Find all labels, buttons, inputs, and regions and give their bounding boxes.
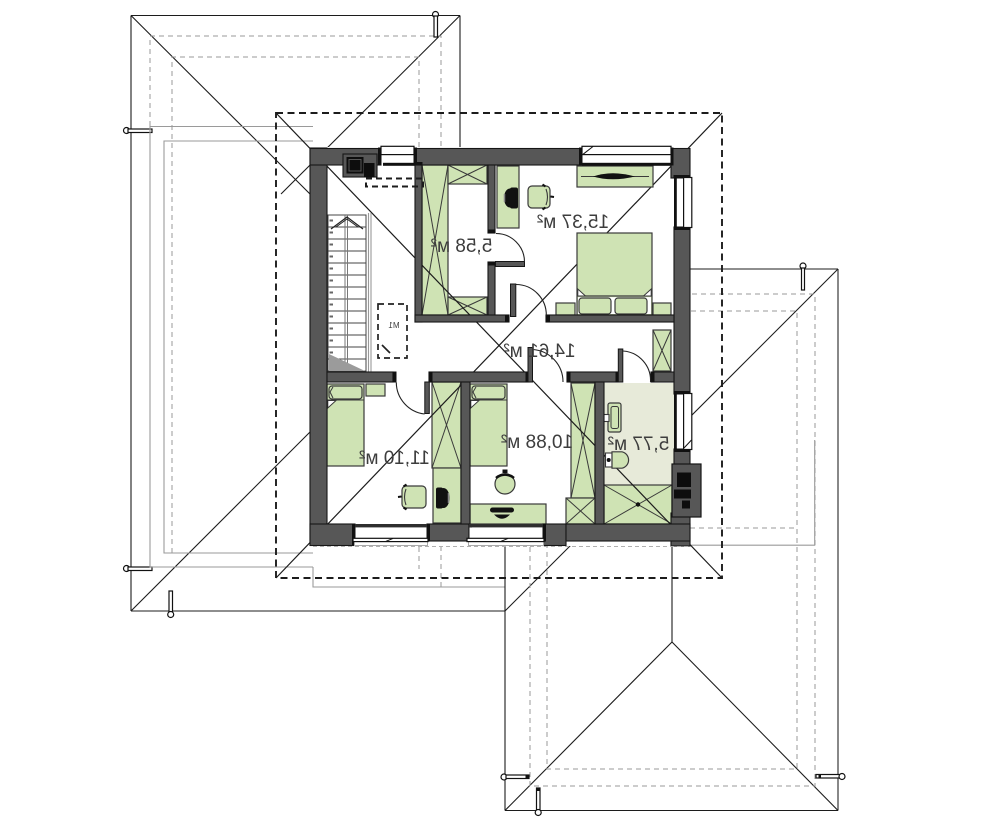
svg-text:5,58 м²: 5,58 м² (431, 236, 493, 257)
svg-text:11,10 м²: 11,10 м² (359, 448, 430, 469)
svg-text:М1: М1 (388, 321, 400, 330)
svg-text:15,37 м²: 15,37 м² (537, 212, 609, 233)
svg-text:14,61 м²: 14,61 м² (503, 341, 575, 362)
svg-text:5,77 м²: 5,77 м² (608, 434, 670, 455)
svg-text:10,88 м²: 10,88 м² (501, 432, 573, 453)
